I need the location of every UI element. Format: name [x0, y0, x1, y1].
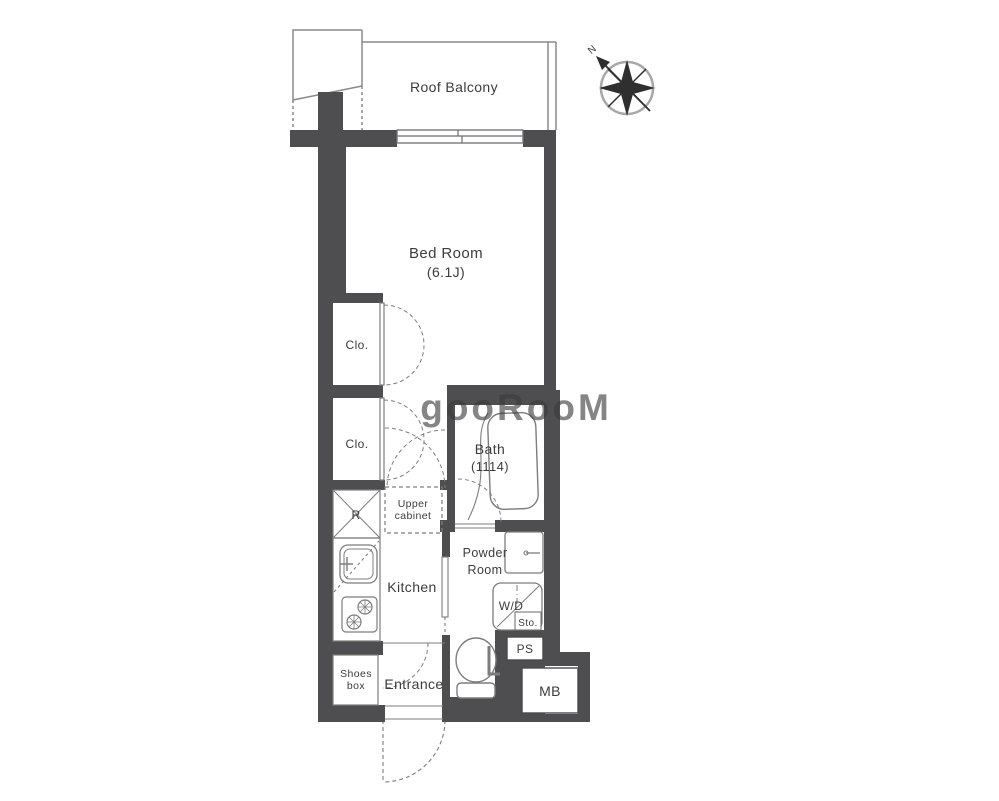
upper-cabinet-label-line2: cabinet [395, 510, 432, 522]
floor-plan-drawing: N gooRooM Roof Balcony Bed Room (6.1J) C… [0, 0, 999, 801]
compass-north-label: N [586, 44, 599, 57]
wall-segment [333, 293, 383, 303]
wall-segment [544, 390, 560, 652]
wall-segment [318, 147, 333, 722]
stove-burner-spokes [358, 600, 372, 614]
wall-segment [544, 130, 556, 390]
closet1-front-track [380, 303, 384, 385]
wall-segment [333, 147, 346, 295]
closet2-door-swing-arc [384, 400, 424, 480]
floor-plan-canvas: N gooRooM Roof Balcony Bed Room (6.1J) C… [0, 0, 999, 801]
wall-segment [333, 385, 383, 398]
powder-room-label-line1: Powder [463, 546, 508, 560]
shoes-box-label-line2: box [347, 680, 365, 692]
entrance-doorway-gap [385, 706, 442, 720]
wall-segment [442, 532, 450, 557]
closet1-label: Clo. [346, 338, 369, 352]
bath-size-label: (1114) [471, 459, 509, 474]
bedroom-label: Bed Room [409, 245, 483, 262]
powder-room-door-leaf [442, 557, 448, 617]
sink-faucet-icon [340, 557, 353, 571]
bedroom-window [397, 130, 523, 143]
balcony-right-edge [548, 42, 556, 130]
compass-rose: N [586, 44, 655, 116]
wall-segment [318, 705, 383, 722]
bath-door-threshold [455, 524, 495, 528]
shoes-box-label-line1: Shoes [340, 668, 372, 680]
wall-segment [578, 666, 590, 722]
bath-label: Bath [475, 441, 505, 457]
hall-door-swing-arc-right [387, 430, 445, 488]
stove-burner-spokes [347, 615, 361, 629]
closet1-door-swing-arc [384, 305, 424, 385]
wall-segment [318, 641, 383, 655]
kitchen-label: Kitchen [387, 579, 437, 595]
refrigerator-label: R [351, 508, 360, 522]
toilet-seat [457, 683, 495, 698]
entrance-label: Entrance [384, 676, 443, 692]
washer-dryer-label: W/D [499, 599, 524, 613]
wall-segment [318, 480, 385, 490]
closet2-front-track [380, 398, 384, 480]
wall-segment [522, 714, 590, 722]
watermark-text: gooRooM [420, 387, 612, 428]
closet2-label: Clo. [346, 437, 369, 451]
wall-segment [495, 520, 545, 532]
wall-segment [290, 130, 397, 147]
door-jamb [379, 705, 385, 722]
wall-segment [544, 652, 590, 666]
entrance-door-swing-arc [383, 720, 445, 782]
pipe-space-label: PS [517, 642, 534, 656]
bedroom-size-label: (6.1J) [427, 264, 465, 280]
upper-cabinet-label-line1: Upper [398, 498, 429, 510]
storage-label: Sto. [518, 618, 537, 629]
roof-balcony-label: Roof Balcony [410, 79, 498, 95]
powder-room-label-line2: Room [468, 563, 503, 577]
door-jamb [443, 705, 449, 722]
meter-box-label: MB [539, 683, 561, 699]
balcony-left-edge [293, 30, 362, 100]
